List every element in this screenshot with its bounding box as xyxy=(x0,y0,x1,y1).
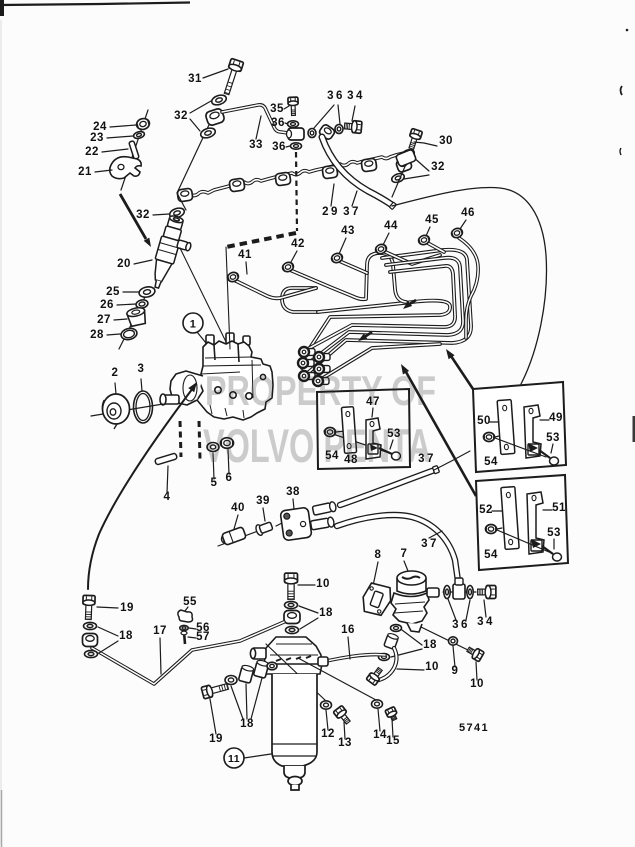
svg-text:53: 53 xyxy=(547,527,561,539)
svg-text:43: 43 xyxy=(341,225,355,237)
svg-text:31: 31 xyxy=(188,73,202,85)
svg-text:1: 1 xyxy=(190,319,197,331)
svg-text:37: 37 xyxy=(421,538,439,550)
svg-text:PROPERTY OF: PROPERTY OF xyxy=(205,367,436,414)
svg-text:37: 37 xyxy=(343,206,361,218)
svg-text:54: 54 xyxy=(484,456,498,468)
svg-text:20: 20 xyxy=(117,258,131,270)
svg-text:40: 40 xyxy=(231,502,245,514)
svg-text:19: 19 xyxy=(120,602,134,614)
svg-text:53: 53 xyxy=(546,432,560,444)
svg-text:36: 36 xyxy=(327,90,345,102)
svg-text:26: 26 xyxy=(100,299,114,311)
svg-text:17: 17 xyxy=(153,625,167,637)
svg-text:18: 18 xyxy=(240,718,254,730)
svg-text:19: 19 xyxy=(209,733,223,745)
svg-text:32: 32 xyxy=(431,161,445,173)
svg-text:VOLVO PENTA: VOLVO PENTA xyxy=(203,419,431,472)
svg-text:50: 50 xyxy=(477,415,491,427)
svg-text:3: 3 xyxy=(138,363,145,375)
svg-text:11: 11 xyxy=(228,753,240,765)
svg-text:18: 18 xyxy=(319,607,333,619)
svg-text:36: 36 xyxy=(271,117,285,129)
svg-text:34: 34 xyxy=(477,616,495,628)
svg-text:49: 49 xyxy=(549,412,563,424)
svg-text:33: 33 xyxy=(249,139,263,151)
svg-text:38: 38 xyxy=(286,486,300,498)
svg-text:21: 21 xyxy=(78,166,92,178)
svg-text:7: 7 xyxy=(401,548,408,560)
svg-text:27: 27 xyxy=(97,314,111,326)
svg-text:39: 39 xyxy=(256,495,270,507)
svg-text:22: 22 xyxy=(85,146,99,158)
svg-text:18: 18 xyxy=(423,639,437,651)
svg-text:28: 28 xyxy=(90,329,104,341)
svg-text:18: 18 xyxy=(119,630,133,642)
svg-text:8: 8 xyxy=(375,549,382,561)
svg-text:54: 54 xyxy=(484,549,498,561)
svg-text:5741: 5741 xyxy=(459,722,489,734)
svg-text:36: 36 xyxy=(272,141,286,153)
svg-text:57: 57 xyxy=(196,631,210,643)
svg-text:35: 35 xyxy=(270,103,284,115)
svg-text:16: 16 xyxy=(341,624,355,636)
svg-text:10: 10 xyxy=(316,578,330,590)
svg-text:52: 52 xyxy=(479,504,493,516)
svg-text:10: 10 xyxy=(425,661,439,673)
svg-text:36: 36 xyxy=(452,619,470,631)
svg-text:32: 32 xyxy=(174,110,188,122)
svg-text:44: 44 xyxy=(384,220,398,232)
svg-text:46: 46 xyxy=(461,207,475,219)
svg-text:55: 55 xyxy=(183,596,197,608)
svg-text:30: 30 xyxy=(439,135,453,147)
svg-text:41: 41 xyxy=(238,249,252,261)
svg-text:25: 25 xyxy=(106,286,120,298)
svg-text:51: 51 xyxy=(552,502,566,514)
svg-text:29: 29 xyxy=(322,206,340,218)
svg-text:42: 42 xyxy=(291,238,305,250)
svg-text:23: 23 xyxy=(90,132,104,144)
svg-text:34: 34 xyxy=(347,90,365,102)
svg-text:2: 2 xyxy=(112,367,119,379)
svg-text:32: 32 xyxy=(136,209,150,221)
svg-text:45: 45 xyxy=(425,214,439,226)
